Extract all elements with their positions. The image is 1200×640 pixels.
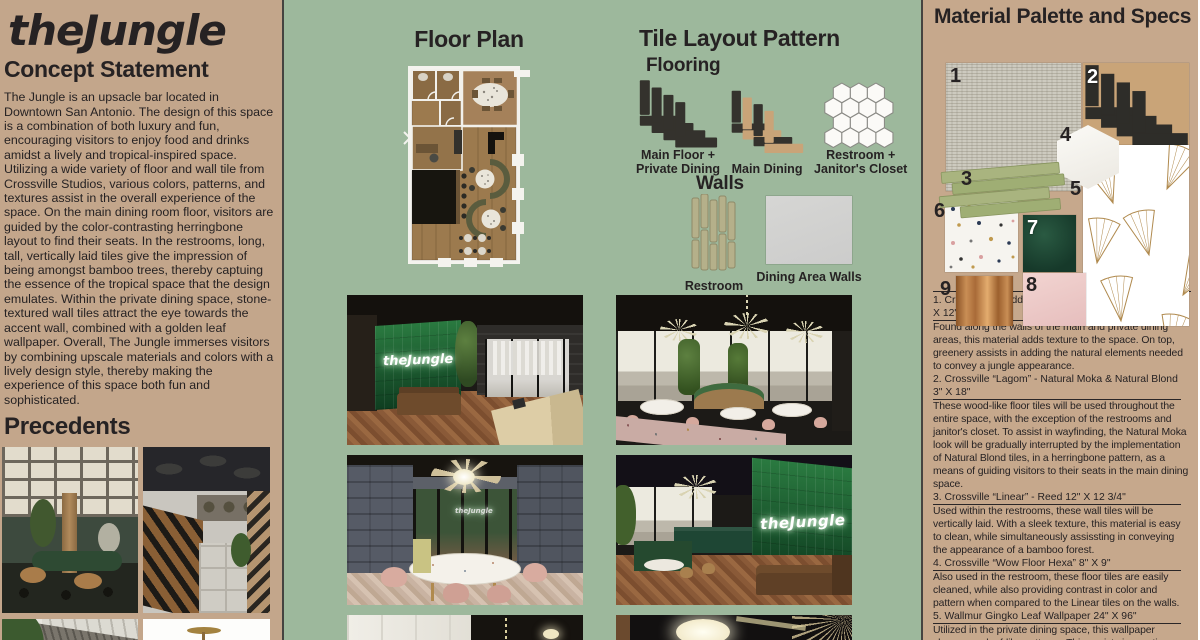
plant	[30, 499, 56, 547]
table-leg	[431, 583, 434, 601]
lamp-stem	[202, 632, 205, 640]
neon-sign: theJungle	[383, 352, 454, 369]
swatch-copper	[956, 276, 1013, 326]
hex-tile-swatch	[821, 82, 901, 148]
dining-chair	[381, 567, 407, 587]
sofa	[397, 393, 461, 415]
floor-plan-drawing	[402, 62, 536, 275]
precedent-image-grid	[0, 441, 282, 640]
spec-body: Used within the restrooms, these wall ti…	[933, 505, 1191, 557]
console	[413, 539, 431, 573]
dining-chair	[814, 417, 827, 428]
flooring-swatch-main-floor: Main Floor + Private Dining	[636, 78, 720, 176]
wall-swatch-restroom: Restroom	[690, 194, 744, 293]
material-number-1: 1	[950, 66, 961, 86]
neon-sign-distant: theJungle	[455, 507, 493, 515]
mirror	[98, 523, 120, 553]
presentation-board: theJungle Concept Statement The Jungle i…	[0, 0, 1200, 640]
tile-layout-title: Tile Layout Pattern	[639, 25, 840, 52]
brand-logo: theJungle	[0, 0, 282, 54]
booth-table	[644, 559, 684, 571]
material-swatch-collage: 1 2 3 4 5 6 7 8 9	[923, 29, 1198, 291]
round-table	[720, 407, 756, 420]
spec-heading: 3. Crossville “Linear” - Reed 12" X 12 3…	[933, 491, 1181, 505]
plant	[231, 533, 251, 567]
material-number-9: 9	[940, 279, 951, 299]
dining-chair	[443, 583, 469, 603]
round-table	[640, 399, 684, 415]
materials-title: Material Palette and Specs	[923, 0, 1198, 29]
curved-booth	[694, 383, 764, 409]
dark-ceiling	[143, 447, 270, 491]
flooring-label-restroom: Restroom + Janitor's Closet	[814, 148, 907, 176]
foliage	[2, 619, 44, 640]
moss-column	[678, 339, 700, 395]
walls-label-restroom: Restroom	[684, 279, 744, 293]
spec-entry: 4. Crossville “Wow Floor Hexa” 8" X 9" A…	[933, 557, 1191, 610]
spec-heading: 5. Wallmur Gingko Leaf Wallpaper 24" X 9…	[933, 610, 1181, 624]
concept-panel: theJungle Concept Statement The Jungle i…	[0, 0, 284, 640]
chevron-bar-counter	[143, 506, 203, 613]
dining-chair	[762, 419, 775, 430]
render-private-dining: theJungle	[347, 455, 583, 605]
floor-plan-title: Floor Plan	[384, 26, 554, 53]
curtains	[493, 341, 563, 375]
pendant-bulb	[453, 469, 475, 485]
flooring-swatch-restroom: Restroom + Janitor's Closet	[814, 82, 907, 176]
material-specs-list: 1. Crossville “Cladding Uniform” - Sands…	[933, 291, 1191, 640]
material-number-7: 7	[1027, 218, 1038, 238]
concept-heading: Concept Statement	[0, 54, 282, 83]
wood-sliver	[616, 615, 630, 640]
spec-entry: 5. Wallmur Gingko Leaf Wallpaper 24" X 9…	[933, 610, 1191, 640]
plans-and-renders-panel: Floor Plan	[284, 0, 923, 640]
spec-heading: 4. Crossville “Wow Floor Hexa” 8" X 9"	[933, 557, 1181, 571]
terrazzo-counter	[616, 416, 786, 445]
plant	[616, 485, 636, 545]
side-wall	[347, 315, 377, 411]
material-number-2: 2	[1087, 67, 1098, 87]
wood-chair	[680, 567, 693, 578]
render-corridor	[347, 615, 583, 640]
walls-subheading: Walls	[696, 173, 744, 195]
flooring-subheading: Flooring	[646, 55, 720, 77]
chairs	[8, 579, 132, 609]
spec-body: Found along the walls of the main and pr…	[933, 321, 1191, 373]
precedents-heading: Precedents	[0, 407, 282, 441]
render-grid: theJungle	[347, 295, 852, 640]
herringbone-two-tone-swatch	[730, 88, 804, 154]
swatch-green-planks	[937, 159, 1073, 225]
material-number-3: 3	[961, 169, 972, 189]
spec-heading: 2. Crossville “Lagom” - Natural Moka & N…	[933, 373, 1181, 400]
spec-entry: 2. Crossville “Lagom” - Natural Moka & N…	[933, 373, 1191, 491]
wall-lamp	[543, 629, 559, 639]
precedent-photo-restaurant	[2, 447, 138, 613]
white-panels	[347, 615, 471, 640]
material-number-6: 6	[934, 201, 945, 221]
walls-label-dining: Dining Area Walls	[749, 270, 869, 284]
spec-body: Utilized in the private dining space, th…	[933, 624, 1191, 640]
spec-body: These wood-like floor tiles will be used…	[933, 400, 1191, 491]
material-number-5: 5	[1070, 179, 1081, 199]
material-number-8: 8	[1026, 275, 1037, 295]
render-ceiling-detail	[616, 615, 852, 640]
concept-statement-text: The Jungle is an upsacle bar located in …	[0, 83, 282, 407]
palm-chandelier	[724, 313, 770, 339]
dining-chair	[487, 585, 511, 603]
bamboo-slat-swatch	[690, 194, 738, 272]
gray-wall-swatch	[766, 196, 852, 264]
banquette	[32, 551, 122, 571]
precedent-photo-exterior	[2, 619, 138, 640]
leather-sofa	[756, 565, 844, 595]
render-entrance: theJungle	[347, 295, 583, 445]
dark-ceiling	[471, 615, 583, 640]
spec-body: Also used in the restroom, these floor t…	[933, 571, 1191, 610]
palm-chandelier	[674, 475, 718, 499]
flooring-swatch-main-dining: Main Dining	[730, 88, 804, 176]
dining-chair	[523, 563, 547, 582]
oval-light	[676, 619, 730, 640]
lamp-cord	[505, 615, 507, 640]
spec-entry: 3. Crossville “Linear” - Reed 12" X 12 3…	[933, 491, 1191, 557]
wood-chair	[702, 563, 715, 574]
palm-chandelier	[660, 319, 698, 341]
precedent-photo-lamp	[143, 619, 270, 640]
herringbone-dark-swatch	[638, 78, 718, 148]
materials-panel: Material Palette and Specs	[923, 0, 1198, 640]
render-bar-lounge: theJungle	[616, 455, 852, 605]
precedent-photo-bar	[143, 447, 270, 613]
flooring-swatches: Main Floor + Private Dining Main Dining	[636, 78, 907, 176]
round-table	[772, 403, 812, 417]
flooring-label-main-floor: Main Floor + Private Dining	[636, 148, 720, 176]
material-number-4: 4	[1060, 125, 1071, 145]
dark-wall	[832, 331, 852, 431]
render-main-dining	[616, 295, 852, 445]
wall-swatch-dining: Dining Area Walls	[766, 196, 869, 284]
sofa-arm	[832, 555, 852, 595]
palm-chandelier	[786, 321, 824, 343]
chandelier-chain	[746, 295, 748, 315]
